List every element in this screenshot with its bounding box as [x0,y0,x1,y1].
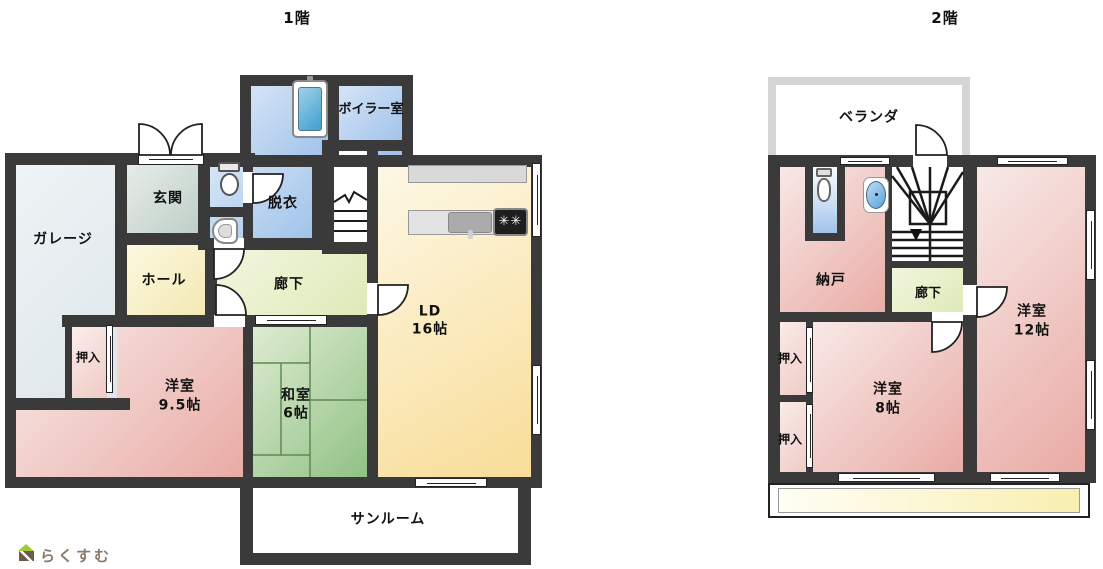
western12-size: 12帖 [1014,323,1050,338]
bathtub-icon [292,80,328,138]
wall [805,233,845,241]
wall [240,75,251,165]
door-opening [214,315,245,327]
wall [367,151,378,477]
wall [5,398,130,410]
wall [5,153,16,488]
window-western8-south [838,473,935,482]
toilet-icon-2f [812,166,838,208]
window-western12-east-1 [1086,210,1095,280]
entrance-label: 玄関 [153,191,183,206]
japanese-size: 6帖 [283,406,309,421]
wall [402,75,413,167]
hall-label: ホール [142,273,187,288]
corridor1-label: 廊下 [274,277,304,292]
wall [65,323,72,400]
wall [62,315,214,327]
sliding-door-closet-2f-lower [806,404,813,468]
window-ld-east-2 [532,365,541,435]
floor1-title: 1階 [283,10,310,27]
garage-label: ガレージ [33,232,93,247]
door-opening [913,155,947,167]
wall-sunroom [240,477,253,565]
veranda-wall [768,77,970,85]
entrance-door-right [171,124,202,155]
storage-label: 納戸 [816,273,846,288]
window-western12-north [997,157,1068,165]
logo-text: らくすむ [40,545,112,566]
japanese-label: 和室 [281,388,311,403]
dressing-label: 脱衣 [268,196,298,211]
floor2-title: 2階 [931,10,958,27]
window-ld-south [415,478,487,487]
western12-label: 洋室 [1017,304,1047,319]
wall [1085,155,1096,483]
western8-label: 洋室 [873,382,903,397]
veranda-wall [962,77,970,159]
kitchen-sink-icon [448,212,492,233]
window-western12-east-2 [1086,360,1095,430]
closet2f-upper-label: 押入 [778,352,802,365]
roof-strip-inner [778,488,1080,513]
logo-house-icon [18,544,35,561]
door-opening [963,285,977,315]
wall-sunroom [518,477,531,565]
ld-size: 16帖 [412,322,448,337]
wall-sunroom [240,553,531,565]
urinal-icon-1f [212,218,238,244]
window-storage-north [840,157,890,165]
entrance-door-left [139,124,170,155]
wall [243,315,253,477]
ld-label: LD [419,304,442,319]
window-western12-south [990,473,1060,482]
sliding-door-japanese-room [255,315,327,325]
wall [312,155,323,250]
veranda-label: ベランダ [839,110,899,125]
stairwell-2f [892,167,963,261]
window-ld-east-1 [532,163,541,237]
stove-icon: ✳✳ [493,208,528,236]
wall [205,245,217,315]
toilet-icon-1f [213,162,247,204]
floor-plan: ✳✳ [0,0,1103,569]
sunroom-label: サンルーム [351,512,426,527]
logo: らくすむ [18,544,148,566]
wall [837,160,845,241]
boiler-label: ボイラー室 [338,103,403,117]
veranda-door [916,125,947,155]
wall [198,155,210,245]
wall [115,153,127,327]
entrance-door-sill [138,153,204,165]
western95-label: 洋室 [165,379,195,394]
wall [115,233,210,245]
closet1f-label: 押入 [76,351,100,364]
wall [198,207,253,217]
wall [885,261,970,268]
closet2f-lower-label: 押入 [778,433,802,446]
sliding-door-closet-2f-upper [806,327,813,393]
wall [322,140,413,151]
sliding-door-closet-1f [106,325,113,393]
wall [768,395,812,402]
western95-size: 9.5帖 [159,398,202,413]
door-opening [367,283,378,314]
western8-size: 8帖 [875,401,901,416]
washbasin-icon [863,177,889,213]
veranda-wall [768,77,776,159]
wall [963,318,977,478]
door-opening [932,312,963,322]
kitchen-counter-top [408,165,527,183]
corridor2-label: 廊下 [915,287,941,301]
